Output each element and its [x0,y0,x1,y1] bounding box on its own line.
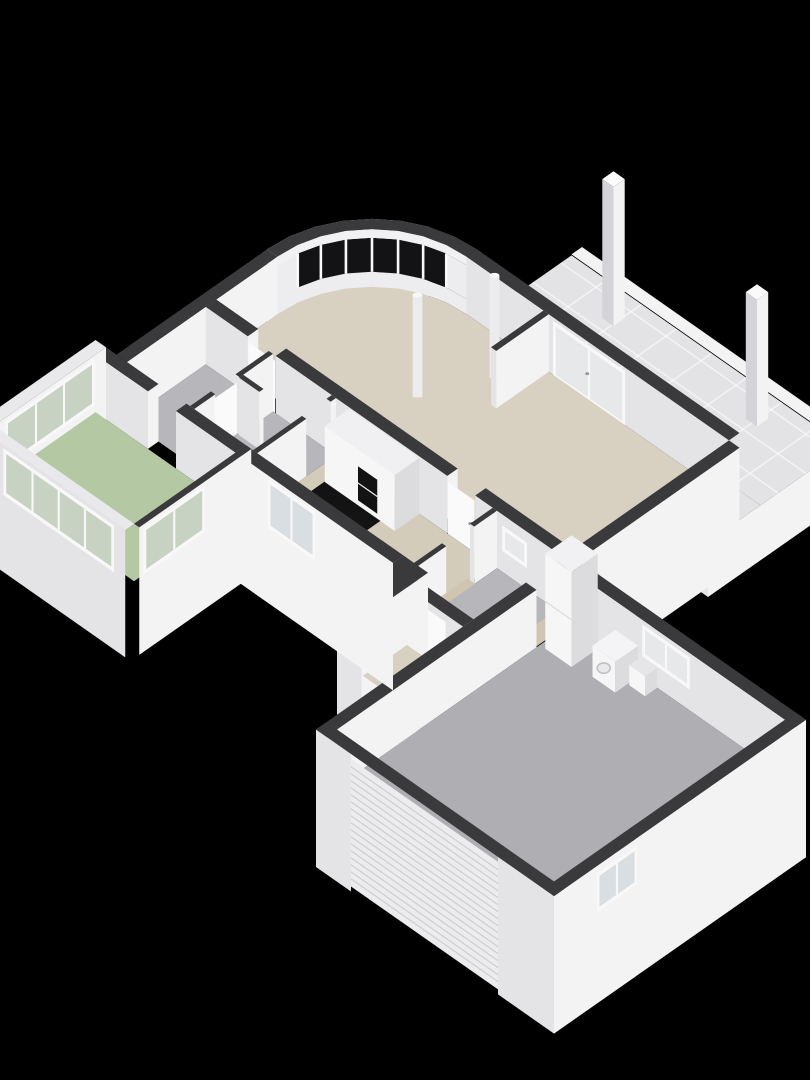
bay-window-glass [321,240,346,279]
utility-west-wall-a-sw-face [470,524,474,584]
sunroom-sw-window-mullion [58,490,60,530]
washing-machine-door [597,663,610,673]
sunroom-se-window-mullion [173,510,175,550]
round-column-top [413,293,423,298]
floorplan-scene [0,0,810,1080]
sunroom-sw-window-mullion [84,508,86,548]
garage-sw-wall-a [316,730,351,892]
bay-window-glass [398,240,423,279]
sunroom-nw-window-mullion [63,383,65,423]
sunroom-sw-window-mullion [31,472,33,512]
living-wall-stub-sw-face [491,347,496,408]
round-column [413,295,423,398]
bay-window-glass [372,238,398,274]
sunroom-ne-wall-a-se-face [148,384,159,449]
patio-pillar-se [757,292,768,426]
kitchen-facade-window-mullion [290,499,292,541]
hall-stub-wall-se-face [259,389,263,449]
patio-pillar-se [614,179,625,326]
garage-side-window-mullion [616,863,618,895]
sunroom-nw-window-mullion [35,403,37,443]
garage-rear-window-mullion [665,644,667,669]
patio-pillar-sw [746,292,757,426]
patio-pillar-sw [602,179,613,326]
door-handle [585,372,589,375]
round-column-top [490,273,500,278]
bay-window-glass [346,238,372,274]
